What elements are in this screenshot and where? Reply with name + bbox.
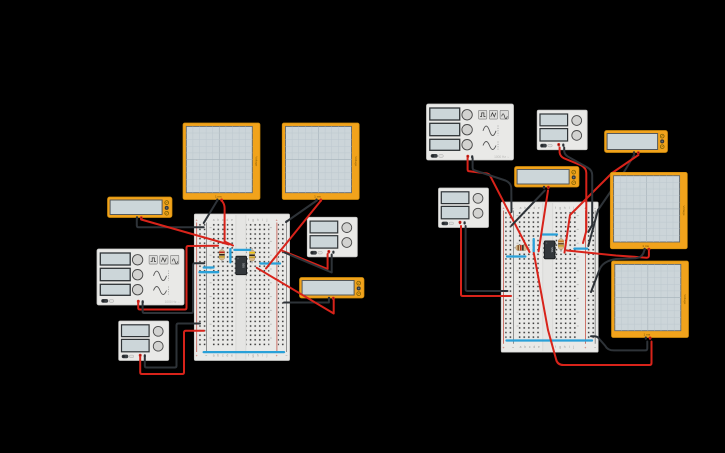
svg-text:b: b [217, 354, 219, 358]
svg-text:−: − [512, 346, 514, 350]
svg-text:d: d [533, 206, 535, 210]
svg-text:a: a [213, 218, 215, 222]
svg-text:555: 555 [550, 247, 554, 252]
svg-text:+: + [503, 206, 505, 210]
svg-text:Voltage: Voltage [255, 156, 259, 166]
svg-text:j: j [266, 218, 268, 222]
svg-text:f: f [555, 206, 556, 210]
svg-text:555: 555 [241, 263, 245, 268]
svg-text:e: e [538, 206, 540, 210]
svg-text:f: f [248, 354, 249, 358]
svg-text:g: g [252, 354, 254, 358]
svg-text:b: b [524, 345, 526, 349]
svg-text:a: a [213, 354, 215, 358]
svg-text:Voltage: Voltage [682, 206, 686, 216]
svg-text:+: + [503, 346, 505, 350]
svg-text:1000 Hz ∼: 1000 Hz ∼ [494, 155, 510, 159]
svg-text:e: e [231, 354, 233, 358]
svg-text:−: − [205, 354, 207, 358]
svg-text:Voltage: Voltage [354, 156, 358, 166]
svg-text:−: − [594, 346, 596, 350]
svg-text:g: g [252, 218, 254, 222]
svg-text:f: f [555, 345, 556, 349]
svg-text:d: d [533, 345, 535, 349]
svg-text:1 ms: 1 ms [215, 195, 222, 199]
svg-text:1 ms: 1 ms [642, 244, 649, 248]
svg-text:h: h [257, 218, 259, 222]
svg-text:h: h [564, 345, 566, 349]
svg-text:+: + [196, 354, 198, 358]
svg-text:f: f [248, 218, 249, 222]
svg-text:a: a [520, 345, 522, 349]
svg-text:j: j [573, 345, 575, 349]
svg-text:−: − [594, 206, 596, 210]
svg-text:j: j [266, 354, 268, 358]
svg-text:d: d [227, 354, 229, 358]
svg-text:e: e [538, 345, 540, 349]
svg-text:a: a [520, 206, 522, 210]
svg-text:h: h [257, 354, 259, 358]
svg-text:−: − [285, 354, 287, 358]
svg-text:b: b [217, 218, 219, 222]
svg-text:j: j [573, 206, 575, 210]
svg-text:Voltage: Voltage [683, 294, 687, 304]
svg-text:g: g [559, 206, 561, 210]
svg-text:+: + [276, 354, 278, 358]
svg-text:1 ms: 1 ms [314, 195, 321, 199]
svg-text:+: + [584, 346, 586, 350]
svg-text:h: h [564, 206, 566, 210]
svg-text:1 ms: 1 ms [643, 333, 650, 337]
svg-text:+: + [196, 218, 198, 222]
svg-text:d: d [227, 218, 229, 222]
svg-text:1000 Hz ∼: 1000 Hz ∼ [165, 300, 181, 304]
svg-text:g: g [559, 345, 561, 349]
svg-text:+: + [276, 218, 278, 222]
svg-text:e: e [231, 218, 233, 222]
